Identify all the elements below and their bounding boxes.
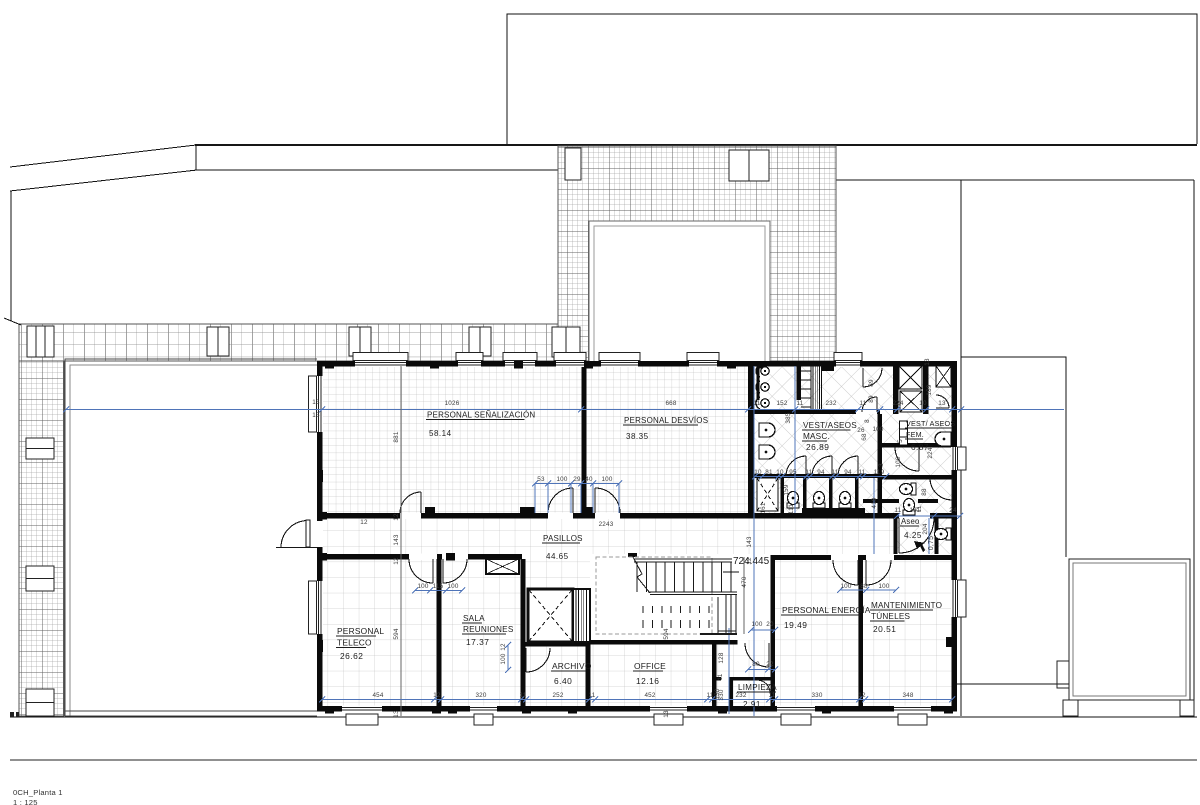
svg-text:6.40: 6.40 bbox=[554, 676, 572, 686]
svg-text:12: 12 bbox=[500, 643, 507, 651]
svg-text:81: 81 bbox=[765, 469, 773, 476]
svg-text:11: 11 bbox=[859, 469, 866, 476]
svg-text:12: 12 bbox=[858, 692, 866, 699]
svg-text:204: 204 bbox=[922, 523, 929, 534]
svg-text:594: 594 bbox=[393, 628, 400, 639]
svg-text:17.37: 17.37 bbox=[466, 637, 489, 647]
svg-text:11: 11 bbox=[754, 400, 761, 407]
svg-text:0,75: 0,75 bbox=[928, 536, 935, 550]
svg-text:100: 100 bbox=[840, 583, 851, 590]
svg-text:80: 80 bbox=[752, 661, 760, 668]
svg-text:11: 11 bbox=[707, 692, 714, 699]
svg-text:5: 5 bbox=[897, 439, 904, 443]
svg-text:452: 452 bbox=[644, 692, 655, 699]
svg-text:38.35: 38.35 bbox=[626, 432, 649, 441]
svg-text:111: 111 bbox=[788, 504, 795, 514]
svg-text:6.87: 6.87 bbox=[911, 443, 929, 452]
svg-text:252: 252 bbox=[552, 692, 563, 699]
svg-text:232: 232 bbox=[735, 692, 746, 699]
svg-text:26.62: 26.62 bbox=[340, 651, 363, 661]
svg-text:MASC.: MASC. bbox=[803, 432, 830, 441]
svg-text:13: 13 bbox=[393, 710, 400, 718]
svg-text:12.16: 12.16 bbox=[636, 676, 659, 686]
svg-text:20.51: 20.51 bbox=[873, 624, 896, 634]
svg-text:100: 100 bbox=[878, 583, 889, 590]
svg-text:385: 385 bbox=[785, 412, 792, 423]
svg-text:232: 232 bbox=[825, 400, 836, 407]
svg-text:13: 13 bbox=[938, 400, 946, 407]
svg-text:8: 8 bbox=[864, 419, 871, 423]
svg-text:ARCHIVO: ARCHIVO bbox=[552, 661, 592, 671]
svg-text:881: 881 bbox=[393, 431, 400, 442]
svg-text:11: 11 bbox=[806, 469, 813, 476]
svg-text:454: 454 bbox=[372, 692, 383, 699]
svg-text:320: 320 bbox=[475, 692, 486, 699]
svg-text:11: 11 bbox=[769, 692, 776, 699]
svg-text:26.89: 26.89 bbox=[806, 442, 829, 452]
svg-text:89: 89 bbox=[868, 395, 875, 403]
svg-text:VEST/ASEOS: VEST/ASEOS bbox=[803, 421, 857, 430]
svg-text:PERSONAL SEÑALIZACIÓN: PERSONAL SEÑALIZACIÓN bbox=[427, 411, 535, 420]
svg-text:143: 143 bbox=[746, 536, 753, 547]
svg-text:11: 11 bbox=[860, 400, 867, 407]
svg-text:10: 10 bbox=[754, 469, 762, 476]
svg-text:20: 20 bbox=[766, 621, 774, 628]
svg-text:FEM.: FEM. bbox=[906, 430, 924, 439]
svg-text:11: 11 bbox=[589, 692, 596, 699]
svg-text:44.65: 44.65 bbox=[546, 552, 569, 561]
svg-text:95: 95 bbox=[789, 469, 797, 476]
svg-text:130: 130 bbox=[714, 688, 721, 699]
svg-text:330: 330 bbox=[811, 692, 822, 699]
svg-text:128: 128 bbox=[718, 652, 725, 663]
svg-text:15: 15 bbox=[312, 412, 320, 419]
svg-text:SALA: SALA bbox=[463, 614, 485, 623]
svg-text:13: 13 bbox=[924, 358, 931, 366]
svg-text:29: 29 bbox=[573, 476, 581, 483]
svg-text:94: 94 bbox=[844, 469, 852, 476]
svg-text:PERSONAL: PERSONAL bbox=[337, 626, 384, 636]
svg-text:26: 26 bbox=[857, 427, 865, 434]
svg-text:MANTENIMIENTO: MANTENIMIENTO bbox=[871, 601, 942, 610]
svg-text:53: 53 bbox=[537, 476, 545, 483]
svg-text:10: 10 bbox=[919, 400, 927, 407]
svg-text:1 : 125: 1 : 125 bbox=[13, 798, 38, 805]
svg-text:115: 115 bbox=[433, 583, 444, 590]
svg-text:668: 668 bbox=[665, 400, 676, 407]
svg-text:19.49: 19.49 bbox=[784, 620, 807, 630]
svg-text:22: 22 bbox=[766, 661, 774, 668]
svg-text:12: 12 bbox=[433, 692, 441, 699]
svg-text:100: 100 bbox=[417, 583, 428, 590]
svg-text:11: 11 bbox=[832, 469, 839, 476]
svg-text:12: 12 bbox=[360, 519, 368, 526]
svg-text:143: 143 bbox=[393, 534, 400, 545]
svg-text:3: 3 bbox=[878, 463, 885, 467]
svg-text:Aseo: Aseo bbox=[901, 517, 920, 526]
svg-text:191: 191 bbox=[909, 507, 920, 514]
svg-text:161: 161 bbox=[760, 502, 767, 513]
svg-text:189: 189 bbox=[926, 384, 933, 395]
svg-text:TELECO: TELECO bbox=[337, 638, 372, 648]
svg-text:PASILLOS: PASILLOS bbox=[543, 534, 583, 543]
svg-text:724.445: 724.445 bbox=[733, 556, 770, 567]
svg-text:119: 119 bbox=[874, 469, 885, 476]
svg-text:TÚNELES: TÚNELES bbox=[871, 611, 911, 621]
svg-text:89: 89 bbox=[868, 379, 875, 387]
svg-text:REUNIONES: REUNIONES bbox=[463, 625, 514, 634]
svg-text:11: 11 bbox=[895, 507, 902, 514]
svg-text:10: 10 bbox=[776, 469, 784, 476]
svg-text:88: 88 bbox=[860, 583, 868, 590]
svg-text:348: 348 bbox=[902, 692, 913, 699]
svg-text:11: 11 bbox=[717, 673, 724, 680]
svg-text:2243: 2243 bbox=[599, 521, 614, 528]
svg-text:88: 88 bbox=[921, 488, 928, 496]
svg-text:94: 94 bbox=[817, 469, 825, 476]
svg-text:594: 594 bbox=[663, 628, 670, 639]
svg-text:58.14: 58.14 bbox=[429, 429, 452, 438]
svg-text:100: 100 bbox=[447, 583, 458, 590]
svg-text:100: 100 bbox=[556, 476, 567, 483]
svg-text:2.91: 2.91 bbox=[743, 700, 761, 709]
svg-text:100: 100 bbox=[601, 476, 612, 483]
svg-text:159: 159 bbox=[783, 484, 790, 495]
svg-text:VEST/ ASEOS: VEST/ ASEOS bbox=[906, 419, 955, 428]
svg-text:11: 11 bbox=[520, 692, 527, 699]
svg-text:100: 100 bbox=[895, 456, 902, 467]
svg-text:24: 24 bbox=[949, 507, 957, 514]
svg-text:224: 224 bbox=[892, 400, 903, 407]
svg-text:13: 13 bbox=[663, 710, 670, 718]
svg-text:100: 100 bbox=[872, 426, 883, 433]
svg-text:100: 100 bbox=[500, 653, 507, 664]
svg-text:0CH_Planta 1: 0CH_Planta 1 bbox=[13, 788, 63, 797]
svg-text:OFFICE: OFFICE bbox=[634, 661, 666, 671]
svg-text:1026: 1026 bbox=[445, 400, 460, 407]
svg-text:13: 13 bbox=[312, 399, 320, 406]
svg-text:419: 419 bbox=[871, 497, 878, 508]
svg-text:LIMPIEZA: LIMPIEZA bbox=[738, 683, 777, 692]
svg-text:470: 470 bbox=[741, 576, 748, 587]
svg-text:40: 40 bbox=[585, 476, 593, 483]
svg-text:PERSONAL ENERGÍA: PERSONAL ENERGÍA bbox=[782, 605, 871, 615]
svg-text:12: 12 bbox=[393, 513, 400, 521]
svg-text:PERSONAL DESVÍOS: PERSONAL DESVÍOS bbox=[624, 416, 708, 425]
svg-text:152: 152 bbox=[776, 400, 787, 407]
svg-text:100: 100 bbox=[751, 621, 762, 628]
svg-text:12: 12 bbox=[393, 557, 400, 565]
svg-text:68: 68 bbox=[861, 433, 868, 441]
svg-text:4.25: 4.25 bbox=[904, 531, 922, 540]
svg-text:11: 11 bbox=[797, 400, 804, 407]
